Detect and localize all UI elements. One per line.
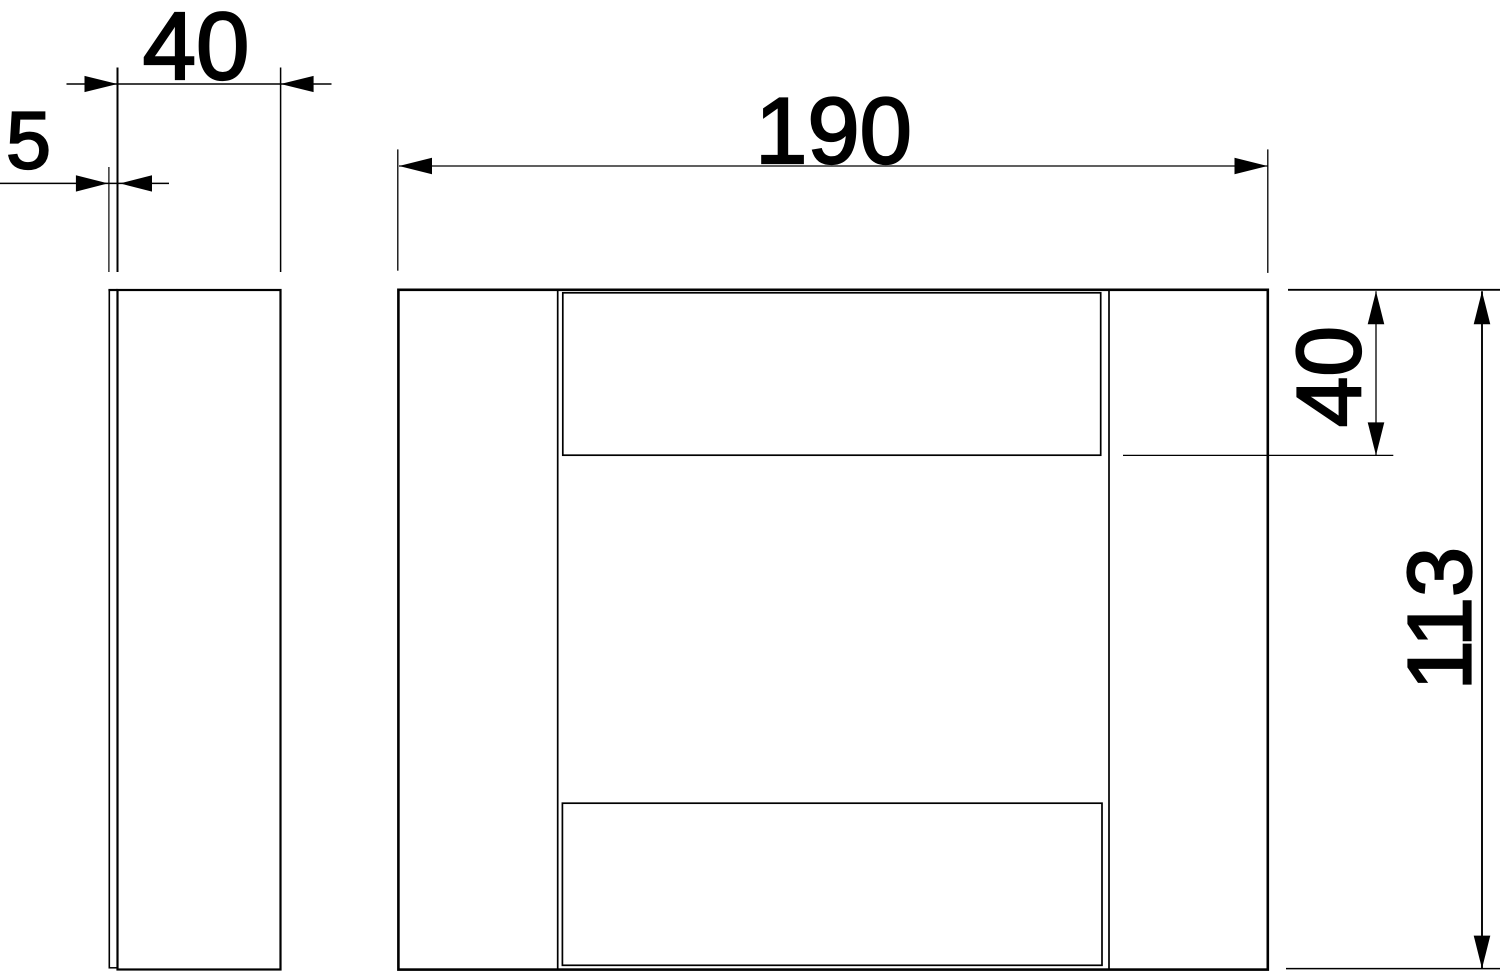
svg-text:40: 40 [143,0,250,100]
svg-text:40: 40 [1279,326,1380,427]
svg-text:5: 5 [6,96,51,186]
svg-text:113: 113 [1390,547,1490,690]
svg-text:190: 190 [755,78,912,183]
